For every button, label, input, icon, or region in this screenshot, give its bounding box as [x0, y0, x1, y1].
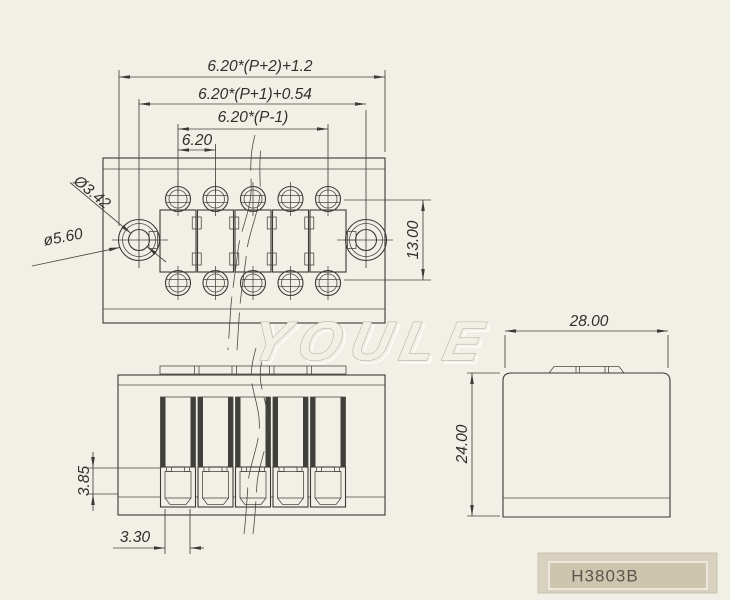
wire-slots	[161, 397, 346, 507]
dim-height-label: 24.00	[454, 424, 471, 464]
top-view: 6.20*(P+2)+1.2 6.20*(P+1)+0.54 6.20*(P-1…	[32, 58, 431, 350]
dim-contact-width-label: 3.30	[120, 529, 151, 546]
dim-row-spacing-label: 13.00	[405, 220, 422, 259]
dim-pitch-label: 6.20	[182, 132, 213, 149]
technical-drawing: 6.20*(P+2)+1.2 6.20*(P+1)+0.54 6.20*(P-1…	[0, 0, 730, 600]
top-view-body	[103, 158, 385, 323]
screw-terminals	[166, 182, 341, 300]
dim-depth-label: 28.00	[569, 313, 609, 330]
drawing-canvas: 6.20*(P+2)+1.2 6.20*(P+1)+0.54 6.20*(P-1…	[0, 0, 730, 600]
side-view-tab	[549, 367, 624, 374]
dim-contact-height-label: 3.85	[76, 466, 93, 497]
front-view: 3.85 3.30	[76, 348, 385, 554]
dim-mount-hole-dia-label: ø5.60	[42, 225, 85, 249]
dim-screw-dia-label: Ø3.42	[69, 172, 113, 213]
watermark: YOULE YOULE	[246, 311, 501, 375]
dim-total-width-label: 6.20*(P+2)+1.2	[207, 58, 313, 75]
dim-mounting-span-label: 6.20*(P+1)+0.54	[198, 86, 312, 103]
part-number-plate: H3803B	[538, 553, 717, 593]
watermark-text: YOULE	[246, 311, 498, 372]
side-view-body	[503, 373, 670, 517]
part-number-label: H3803B	[571, 567, 638, 586]
dim-pole-span-label: 6.20*(P-1)	[218, 109, 289, 126]
